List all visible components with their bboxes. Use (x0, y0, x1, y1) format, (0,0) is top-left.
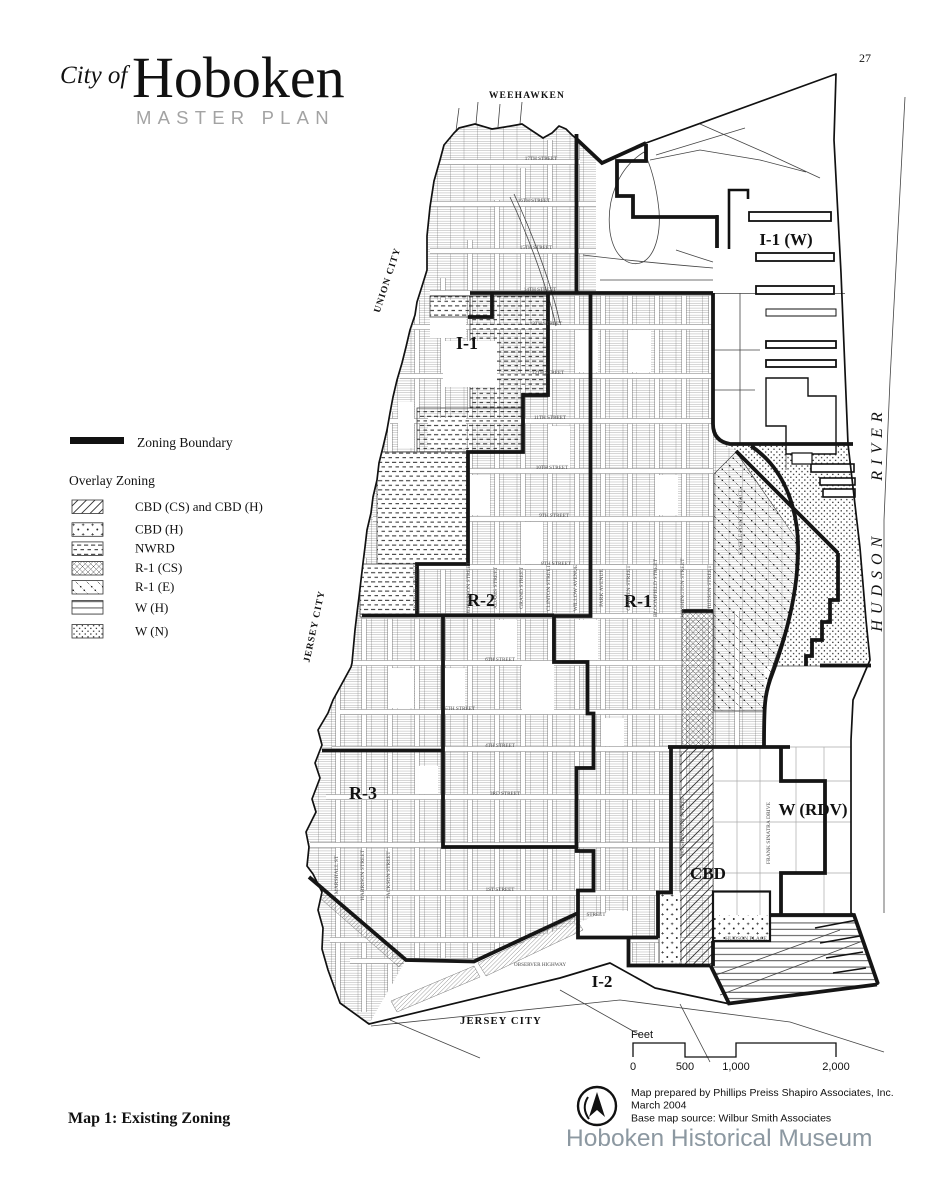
svg-text:1ST STREET: 1ST STREET (486, 887, 516, 893)
svg-text:R-1 (E): R-1 (E) (135, 579, 174, 594)
svg-text:GRAND STREET: GRAND STREET (519, 567, 525, 609)
svg-text:1,000: 1,000 (722, 1061, 750, 1073)
svg-text:FRANK SINATRA DRIVE: FRANK SINATRA DRIVE (766, 801, 772, 864)
svg-text:I-2: I-2 (592, 972, 613, 991)
svg-text:5TH STREET: 5TH STREET (445, 706, 476, 712)
svg-text:500: 500 (676, 1061, 694, 1073)
svg-text:W (N): W (N) (135, 624, 168, 639)
svg-text:GARDEN STREET: GARDEN STREET (626, 565, 632, 611)
svg-text:City of: City of (60, 62, 130, 89)
svg-text:Zoning Boundary: Zoning Boundary (137, 435, 233, 450)
svg-text:Map prepared by Phillips Preis: Map prepared by Phillips Preiss Shapiro … (631, 1087, 894, 1099)
svg-text:WASHINGTON STREET: WASHINGTON STREET (680, 558, 686, 618)
svg-text:WASHINGTON STREET: WASHINGTON STREET (680, 796, 686, 856)
svg-text:2,000: 2,000 (822, 1061, 850, 1073)
svg-text:BLOOMFIELD STREET: BLOOMFIELD STREET (653, 558, 659, 617)
svg-text:HUDSON RIVER: HUDSON RIVER (869, 406, 886, 632)
svg-text:R-3: R-3 (349, 783, 377, 803)
svg-text:4TH STREET: 4TH STREET (485, 743, 516, 749)
svg-text:Overlay Zoning: Overlay Zoning (69, 473, 155, 488)
svg-text:CBD: CBD (690, 864, 726, 883)
svg-text:27: 27 (859, 51, 871, 65)
svg-text:13TH STREET: 13TH STREET (530, 321, 563, 327)
svg-text:Map 1: Existing Zoning: Map 1: Existing Zoning (68, 1110, 230, 1127)
svg-text:OBSERVER HIGHWAY: OBSERVER HIGHWAY (514, 962, 567, 968)
svg-text:6TH STREET: 6TH STREET (485, 657, 516, 663)
svg-text:Feet: Feet (631, 1029, 653, 1041)
svg-text:3RD STREET: 3RD STREET (490, 791, 521, 797)
svg-text:0: 0 (630, 1061, 636, 1073)
svg-text:WEEHAWKEN: WEEHAWKEN (489, 91, 565, 101)
svg-text:W (RDV): W (RDV) (778, 800, 847, 819)
svg-text:I-1 (W): I-1 (W) (759, 230, 812, 249)
svg-text:JEFFERSON STREET: JEFFERSON STREET (466, 561, 472, 614)
svg-text:Base map source: Wilbur Smith: Base map source: Wilbur Smith Associates (631, 1113, 831, 1125)
svg-text:CLINTON STREET: CLINTON STREET (546, 564, 552, 611)
svg-text:CBD (CS) and CBD (H): CBD (CS) and CBD (H) (135, 499, 263, 514)
svg-text:12TH STREET: 12TH STREET (532, 370, 565, 376)
svg-text:16TH STREET: 16TH STREET (518, 198, 551, 204)
svg-text:10TH STREET: 10TH STREET (536, 465, 569, 471)
svg-text:HUDSON PLACE: HUDSON PLACE (725, 936, 767, 942)
svg-text:NWRD: NWRD (135, 541, 175, 556)
svg-text:MONROE STREET: MONROE STREET (413, 564, 419, 611)
svg-text:17TH STREET: 17TH STREET (525, 156, 558, 162)
svg-text:MASTER PLAN: MASTER PLAN (136, 107, 335, 128)
svg-text:PARK AVENUE: PARK AVENUE (599, 569, 605, 607)
svg-text:Hoboken Historical Museum: Hoboken Historical Museum (566, 1125, 872, 1152)
svg-text:JACKSON STREET: JACKSON STREET (386, 851, 392, 899)
svg-text:11TH STREET: 11TH STREET (534, 415, 567, 421)
svg-text:I-1: I-1 (456, 333, 478, 353)
svg-text:Hoboken: Hoboken (132, 45, 345, 110)
svg-text:R-1 (CS): R-1 (CS) (135, 560, 182, 575)
svg-text:JERSEY CITY: JERSEY CITY (460, 1016, 542, 1027)
svg-text:WILLOW AVENUE: WILLOW AVENUE (573, 564, 579, 611)
svg-text:MARSHALL ST: MARSHALL ST (334, 855, 340, 894)
svg-text:STREET: STREET (586, 912, 606, 918)
svg-text:14TH STREET: 14TH STREET (524, 287, 557, 293)
svg-text:15TH STREET: 15TH STREET (520, 245, 553, 251)
svg-text:ADAMS STREET: ADAMS STREET (493, 566, 499, 609)
svg-text:CBD (H): CBD (H) (135, 522, 183, 537)
svg-text:March 2004: March 2004 (631, 1100, 687, 1112)
svg-text:9TH STREET: 9TH STREET (539, 513, 570, 519)
svg-text:W (H): W (H) (135, 600, 168, 615)
svg-text:CASTLE POINT TERRACE: CASTLE POINT TERRACE (738, 489, 744, 555)
svg-text:HUDSON STREET: HUDSON STREET (707, 565, 713, 611)
svg-text:HARRISON STREET: HARRISON STREET (360, 849, 366, 900)
